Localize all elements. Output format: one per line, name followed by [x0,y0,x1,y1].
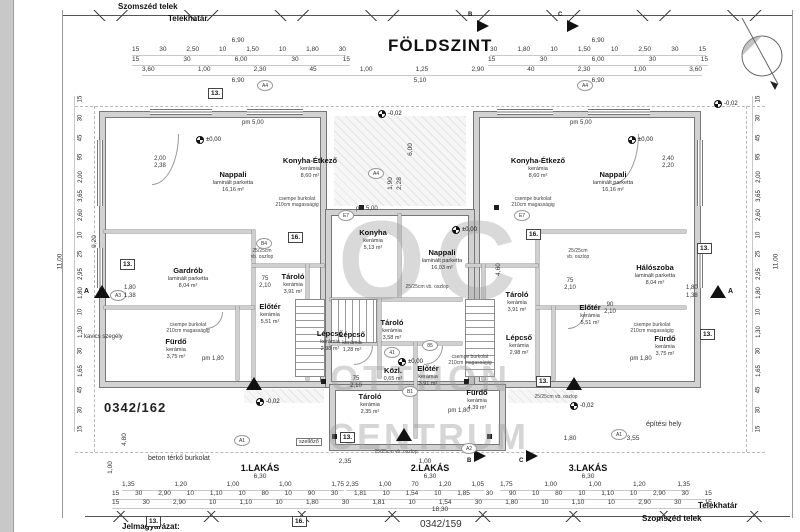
room-finish: kerámia [359,402,382,409]
opening-marker: B4 [256,238,272,249]
room-finish: kerámia [466,398,487,405]
room-label-konyha-2: Konyha kerámia 5,13 m² [359,228,387,252]
dim-value: 1,80 [756,287,762,299]
dim-value: 30 [339,46,346,55]
north-arrow-icon [732,14,788,92]
gravel-edge-note: kavics szegély [84,334,123,340]
dim-value: 70 [411,481,418,490]
room-name: Tároló [381,318,404,328]
dim-value: 45 [756,134,762,141]
level-value: -0,02 [266,399,280,405]
section-flag-icon [567,20,579,32]
dim-value: 1,65 [756,365,762,377]
rc-column-note: 25/25cm vb. oszlop [567,248,590,261]
rc-column-note: 25/25cm vb. oszlop [374,449,417,455]
dim-value: 3,60 [689,66,702,75]
room-label-gardrob-1: Gardrób laminált parketta 8,04 m² [168,266,208,290]
note-line: 25/25cm vb. oszlop [374,449,417,455]
dim-value: 30 [486,490,493,499]
room-area: 0,65 m² [384,376,403,383]
dim-value: 30 [342,499,349,508]
rc-column [464,379,469,384]
dim-value: 90 [509,490,516,499]
room-finish: kerámia [506,343,532,350]
note-line: 210cm magasságig [166,328,209,334]
dim-value: 3,65 [78,190,84,202]
wall [552,306,555,380]
keynote: 13. [700,329,715,340]
room-name: Nappali [593,170,633,180]
dim-value: 10 [578,490,585,499]
opening-marker: B1 [402,386,418,397]
room-name: Lépcső [506,333,532,343]
window [97,248,103,288]
section-label-b: B [467,458,471,464]
dim-value: 10 [78,309,84,316]
dim-value: 1,81 [372,499,385,508]
room-finish: kerámia [506,300,529,307]
room-finish: kerámia [381,328,404,335]
window-dim: 2,00 2,38 [154,156,166,170]
dim-value: 30 [291,56,298,65]
dim-chain: 15306,003015 [132,56,350,66]
opening-marker: A1 [611,429,627,440]
room-label-kozl-2: Közl. 0,65 m² [384,366,403,383]
entrance-arrow-icon [566,377,582,390]
dim-value: 6,00 [592,56,605,65]
window [150,109,212,115]
room-finish: kerámia [417,374,438,381]
room-finish: laminált parketta [168,276,208,283]
dim-value: 1,00 [227,481,240,490]
keynote: 13. [120,259,135,270]
parapet-note: pm 1,80 [448,408,470,414]
vent-note: szellőző [296,438,322,446]
keynote: 13. [340,432,355,443]
dim-total: 6,90 [232,77,245,84]
window [588,109,650,115]
room-name: Gardrób [168,266,208,276]
dim-vertical: 2,28 [396,177,403,190]
room-label-tarolo-1: Tároló kerámia 3,91 m² [282,272,305,296]
dim-value: 80 [555,490,562,499]
dim-value: 15 [78,96,84,103]
level-marker: ±0,00 [196,136,221,144]
room-finish: laminált parketta [213,180,253,187]
room-finish: kerámia [282,282,305,289]
room-label-eloter-1: Előtér kerámia 5,51 m² [259,302,280,326]
dim-value: 1,25 [416,66,429,75]
dim-total: 6,90 [592,77,605,84]
keynote: 16. [292,516,307,527]
dim-value: 90 [604,302,616,309]
door-dim: 75 2,10 [564,278,576,292]
room-finish: kerámia [579,313,600,320]
note-line: vb. oszlop [567,254,590,260]
room-area: 16,16 m² [593,187,633,194]
rc-column [332,434,337,439]
dim-value: 25 [756,251,762,258]
floor-plan-sheet: Szomszéd telek Telekhatár Telekhatár Szo… [0,0,800,532]
dim-value: 1,20 [633,481,646,490]
dim-value: 30 [490,46,497,55]
unit-label-1: 1.LAKÁS [241,463,280,473]
dim-value: 2,95 [78,268,84,280]
wall [466,264,538,267]
room-area: 3,91 m² [417,381,438,388]
dim-value: 2,20 [662,163,674,170]
room-label-lepcso-2: Lépcső kerámia 1,28 m² [339,330,365,354]
room-area: 8,04 m² [168,283,208,290]
dim-value: 15 [132,46,139,55]
keynote: 16. [526,229,541,240]
door-dim: 75 2,10 [259,276,271,290]
door-dim: 75 2,10 [350,376,362,390]
dim-total-vertical: 11,00 [772,254,779,270]
building-site-note: építési hely [646,421,681,428]
dim-value: 10 [408,499,415,508]
dim-value: 30 [159,46,166,55]
section-label-c: C [519,458,523,464]
neighbor-plot-number: 0342/159 [420,519,462,530]
tile-note: csempe burkolat 210cm magasságig [511,196,554,209]
dim-value: 1,50 [246,46,259,55]
note-line: vb. oszlop [251,254,274,260]
parapet-note: pm 5,00 [570,120,592,126]
room-label-haloszoba-3: Hálószoba laminált parketta 8,04 m² [635,263,675,287]
dim-vertical: 4,80 [121,433,128,446]
dim-value: 75 [350,376,362,383]
opening-marker: 41 [384,347,400,358]
room-name: Fürdő [165,337,186,347]
dim: 1,80 [686,285,698,291]
dim-value: 10 [550,46,557,55]
level-value: ±0,00 [462,227,477,233]
tile-note: csempe burkolat 210cm magasságig [448,354,491,367]
level-value: ±0,00 [408,359,423,365]
room-area: 5,51 m² [579,320,600,327]
keynote: 13. [697,243,712,254]
dim-value: 15 [705,499,712,508]
opening-marker: A4 [368,168,384,179]
dim-value: 45 [78,134,84,141]
dim-value: 90 [308,490,315,499]
room-finish: kerámia [654,344,675,351]
room-label-lepcso-3: Lépcső kerámia 2,98 m² [506,333,532,357]
unit-label-2: 2.LAKÁS [411,463,450,473]
opening-marker: A2 [461,443,477,454]
room-label-eloter-2: Előtér kerámia 3,91 m² [417,364,438,388]
dim-value: 1,80 [518,46,531,55]
dim-value: 2,40 [662,156,674,163]
dim-value: 10 [608,499,615,508]
section-label-b: B [468,12,472,18]
dim-value: 1,00 [544,481,557,490]
level-value: -0,02 [388,111,402,117]
dim-value: 15 [112,490,119,499]
dim-value: 2,10 [604,309,616,316]
room-name: Nappali [213,170,253,180]
dim-value: 2,50 [638,46,651,55]
dim-total-vertical: 11,00 [56,254,63,270]
section-label-c: C [558,12,562,18]
dim-value: 1,65 [78,365,84,377]
room-area: 8,60 m² [283,173,337,180]
dim-value: 1,80 [306,499,319,508]
wall [252,264,324,267]
label-plot-line-top: Telekhatár [168,14,207,23]
dim-chain: 15302,50101,50101,8030 [132,46,346,56]
dim-value: 1,80 [78,287,84,299]
dim: 2,35 [339,458,352,465]
opening-marker: E7 [338,210,354,221]
dim-value: 30 [78,406,84,413]
level-marker: ±0,00 [628,136,653,144]
room-finish: kerámia [259,312,280,319]
room-finish: kerámia [359,238,387,245]
dim-value: 15 [132,56,139,65]
dim-vertical: 4,60 [495,263,502,276]
unit-width: 6,30 [254,473,267,480]
dim-value: 10 [209,499,216,508]
dim-value: 30 [331,490,338,499]
section-label-a: A [728,288,733,295]
wall [104,230,254,233]
room-area: 16,03 m² [422,265,462,272]
room-area: 3,58 m² [381,335,404,342]
page-title: FÖLDSZINT [388,36,492,56]
dim-value: 10 [532,490,539,499]
dim-value: 1,35 [122,481,135,490]
dim-value: 15 [699,46,706,55]
room-label-konyha-etkezo-3: Konyha-Étkező kerámia 8,60 m² [511,156,565,180]
dim-value: 25 [78,251,84,258]
room-area: 3,91 m² [282,289,305,296]
dim-value: 2,30 [254,66,267,75]
dim-value: 30 [649,56,656,65]
opening-marker: A1 [234,435,250,446]
dim-value: 10 [541,499,548,508]
dim-chain: 301,80101,50102,503015 [490,46,706,56]
dim-value: 2,90 [158,490,171,499]
level-marker: -0,02 [378,110,402,118]
dim-value: 1,10 [572,499,585,508]
room-name: Fürdő [654,334,675,344]
paving-note: beton térkő burkolat [148,455,210,462]
window [697,248,703,288]
room-area: 8,04 m² [635,280,675,287]
dim-value: 30 [681,490,688,499]
dim-value: 15 [78,426,84,433]
keynote: 13. [146,516,161,527]
dim-value: 2,95 [756,268,762,280]
dim-value: 1,00 [360,66,373,75]
parapet-note: pm 5,00 [356,206,378,212]
wall [236,306,239,380]
level-value: -0,02 [580,403,594,409]
section-arrow-icon [710,285,726,298]
dim-value: 30 [756,348,762,355]
dim-value: 15 [701,56,708,65]
dim-value: 1,81 [354,490,367,499]
dim-value: 2,00 [154,156,166,163]
room-area: 16,16 m² [213,187,253,194]
room-area: 3,91 m² [506,307,529,314]
room-label-nappali-2: Nappali laminált parketta 16,03 m² [422,248,462,272]
room-area: 2,35 m² [359,409,382,416]
rc-column [487,434,492,439]
room-name: Tároló [282,272,305,282]
dim-value: 15 [112,499,119,508]
dim-value: 30 [674,499,681,508]
dim-value: 1,80 [306,46,319,55]
dim-value: 10 [382,490,389,499]
dim-value: 2,90 [638,499,651,508]
dim-value: 45 [78,387,84,394]
label-neighbor-plot-bottom: Szomszéd telek [642,514,702,523]
building-site-line [94,106,95,452]
opening-marker: E7 [514,210,530,221]
level-marker: ±0,00 [398,358,423,366]
building-site-line [75,452,765,453]
building-site-line [746,106,747,452]
room-finish: kerámia [511,166,565,173]
note-line: 210cm magasságig [448,360,491,366]
dim-value: 1,30 [78,326,84,338]
dim-value: 2,00 [78,171,84,183]
room-finish: laminált parketta [422,258,462,265]
dim-value: 2,60 [78,210,84,222]
entrance-arrow-icon [396,428,412,441]
dim-value: 1,10 [239,499,252,508]
note-line: 25/25cm vb. oszlop [534,394,577,400]
section-flag-icon [477,20,489,32]
room-finish: laminált parketta [593,180,633,187]
dim-value: 30 [475,499,482,508]
window-dim: 2,40 2,20 [662,156,674,170]
opening-marker: A4 [577,80,593,91]
room-label-nappali-3: Nappali laminált parketta 16,16 m² [593,170,633,194]
entrance-arrow-icon [246,377,262,390]
parapet-note: pm 1,80 [630,356,652,362]
keynote: 13. [536,376,551,387]
dim-value: 1,20 [174,481,187,490]
dim-value: 1,75 [500,481,513,490]
room-name: Tároló [506,290,529,300]
dim-value: 10 [756,232,762,239]
room-finish: kerámia [283,166,337,173]
tile-note: csempe burkolat 210cm magasságig [630,322,673,335]
room-name: Hálószoba [635,263,675,273]
dim-value: 45 [309,66,316,75]
dim-value: 15 [705,490,712,499]
dim-value: 2,30 [578,66,591,75]
room-name: Tároló [359,392,382,402]
dim-value: 1,10 [601,490,614,499]
unit-label-3: 3.LAKÁS [569,463,608,473]
dim-value: 10 [238,490,245,499]
room-label-konyha-etkezo-1: Konyha-Étkező kerámia 8,60 m² [283,156,337,180]
dim-value: 30 [143,499,150,508]
note-line: 210cm magasságig [630,328,673,334]
dim-vertical: 1,00 [107,461,114,474]
room-label-eloter-3: Előtér kerámia 5,51 m² [579,303,600,327]
dim-value: 2,35 [346,481,359,490]
wing-left [100,112,326,387]
room-area: 5,51 m² [259,319,280,326]
wall [536,230,686,233]
section-arrow-icon [94,285,110,298]
rc-column-note: 25/25cm vb. oszlop [251,248,274,261]
dim-value: 30 [756,115,762,122]
dim-value: 2,50 [186,46,199,55]
door-dim: 90 2,10 [604,302,616,316]
rc-column-note: 25/25cm vb. oszlop [405,284,448,290]
dim-total: 6,90 [232,37,245,44]
room-label-furdo-1: Fürdő kerámia 3,75 m² [165,337,186,361]
dim-value: 1,00 [589,481,602,490]
dim-value: 95 [756,154,762,161]
window [697,140,703,206]
dim-value: 30 [135,490,142,499]
dim-value: 10 [434,490,441,499]
tile-note: csempe burkolat 210cm magasságig [275,196,318,209]
room-name: Nappali [422,248,462,258]
dim-value: 40 [527,66,534,75]
dim: 1,80 [564,435,577,442]
level-value: ±0,00 [206,137,221,143]
dim: 1,38 [124,293,136,299]
keynote: 13. [208,88,223,99]
room-area: 3,75 m² [654,351,675,358]
window [497,109,553,115]
level-value: -0,02 [724,101,738,107]
dim-value: 2,38 [154,163,166,170]
room-area: 3,75 m² [165,354,186,361]
dim-value: 1,35 [677,481,690,490]
dim-value: 10 [611,46,618,55]
room-name: Lépcső [339,330,365,340]
dim-value: 2,60 [756,210,762,222]
dim-value: 1,00 [633,66,646,75]
dim: 1,80 [124,285,136,291]
window [247,109,303,115]
plot-boundary-right [792,10,793,518]
parapet-note: pm 5,00 [242,120,264,126]
dim-vertical: 6,00 [407,143,414,156]
section-flag-icon [526,450,538,462]
dim-value: 30 [183,56,190,65]
dim-total: 18,30 [432,506,448,513]
dim-value: 10 [219,46,226,55]
room-name: Fürdő [466,388,487,398]
level-marker: -0,02 [714,100,738,108]
room-area: 5,13 m² [359,245,387,252]
room-label-tarolo-2a: Tároló kerámia 3,58 m² [381,318,404,342]
parapet-note: pm 1,80 [202,356,224,362]
viewer-edge-strip [0,0,14,532]
dim-vertical: 9,20 [91,235,98,248]
keynote: 16. [288,232,303,243]
entry-court-terrace [334,116,466,206]
opening-marker: A4 [257,80,273,91]
room-name: Konyha [359,228,387,238]
note-line: 210cm magasságig [511,202,554,208]
dim-chain-vertical: 153045952,003,652,6010252,951,80101,3030… [752,96,764,432]
dim-chain-vertical: 153045952,003,652,6010252,951,80101,3030… [74,96,86,432]
room-name: Konyha-Étkező [283,156,337,166]
room-label-tarolo-2b: Tároló kerámia 2,35 m² [359,392,382,416]
